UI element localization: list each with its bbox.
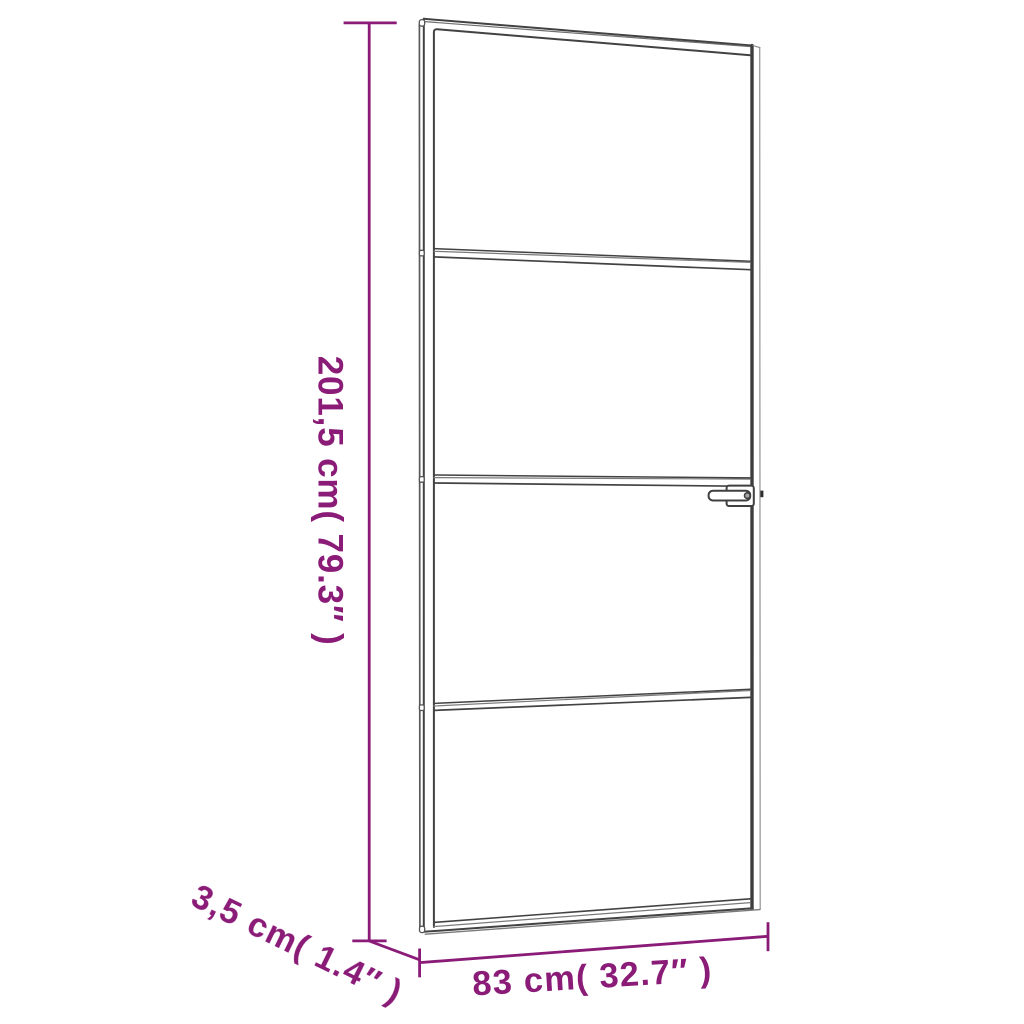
svg-text:201,5 cm( 79.3″ ): 201,5 cm( 79.3″ ) [311,356,350,646]
